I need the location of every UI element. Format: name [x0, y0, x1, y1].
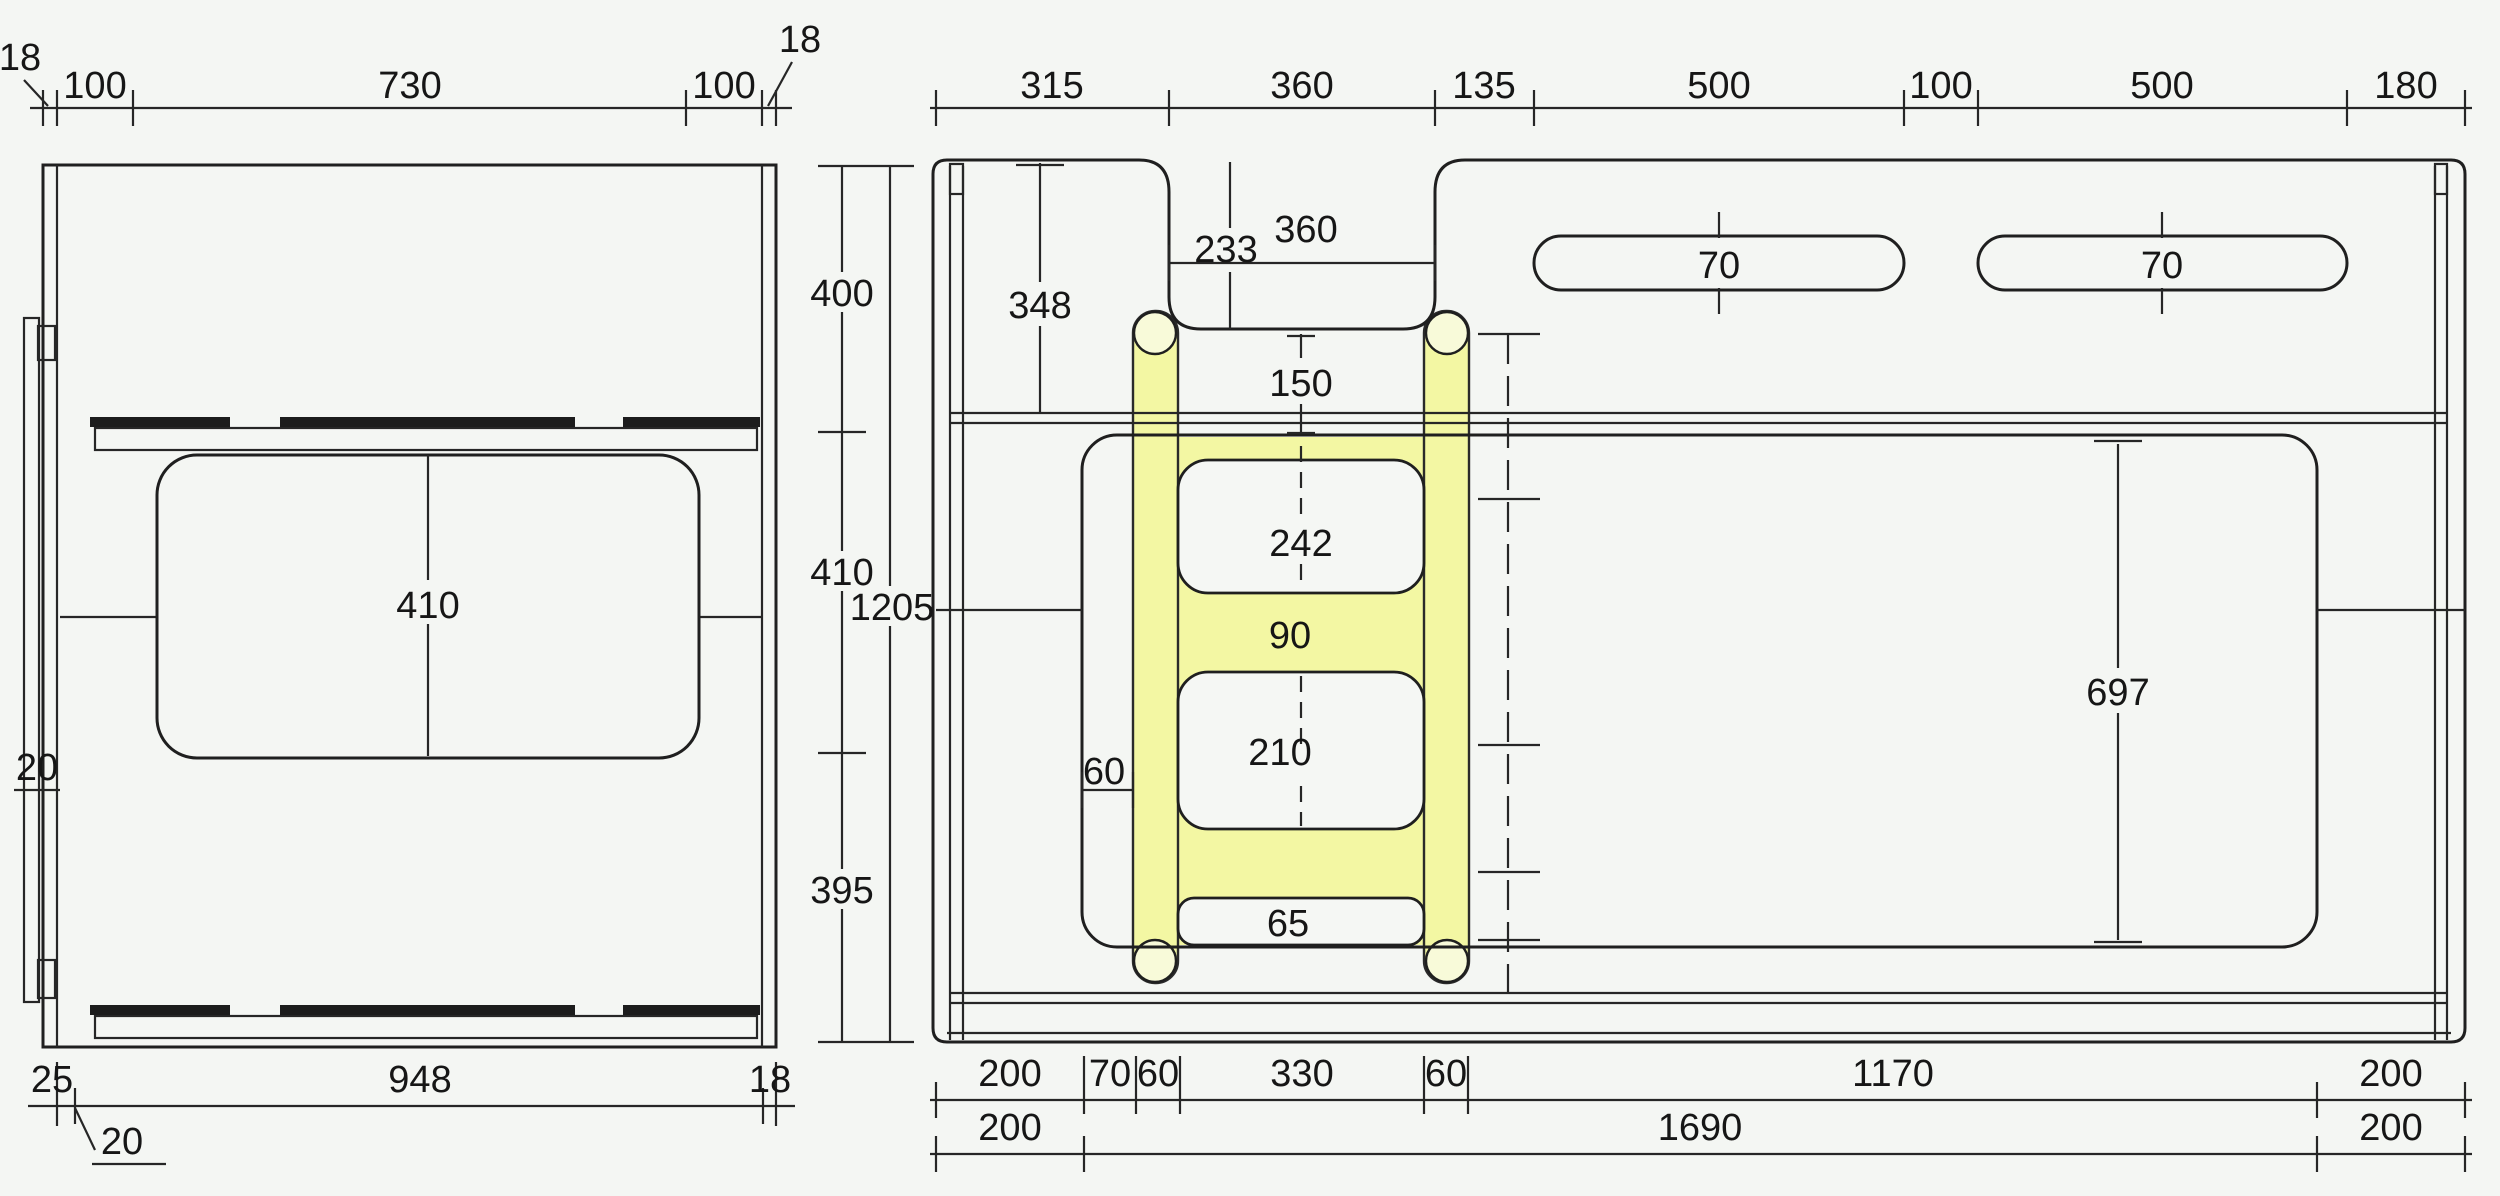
right-lower-rail — [950, 993, 2447, 1003]
dim-label-lv-100-left: 100 — [63, 65, 126, 107]
dim-label-rb1-330: 330 — [1270, 1053, 1333, 1095]
dim-label-rv-315: 315 — [1020, 65, 1083, 107]
dim-label-lv-100-right: 100 — [692, 65, 755, 107]
dim-label-lv-20-bottom: 20 — [101, 1121, 143, 1163]
dim-label-lv-948: 948 — [388, 1059, 451, 1101]
dashed-reference-line — [1478, 334, 1540, 992]
dim-label-rv-233: 233 — [1194, 229, 1257, 271]
dim-label-rb1-70: 70 — [1089, 1053, 1131, 1095]
dim-label-rv-360-notch: 360 — [1274, 209, 1337, 251]
dim-label-lv-20-mid: 20 — [16, 747, 58, 789]
dim-label-lv-730: 730 — [378, 65, 441, 107]
dim-label-rb1-200-r: 200 — [2359, 1053, 2422, 1095]
left-lower-rail — [90, 1005, 760, 1038]
dim-label-rb1-60-a: 60 — [1137, 1053, 1179, 1095]
dim-label-mid-400: 400 — [810, 273, 873, 315]
technical-drawing: 1810073010018410202594818204004101205395… — [0, 0, 2500, 1196]
dim-label-lv-18-right: 18 — [779, 19, 821, 61]
dim-label-rv-70-slot1: 70 — [1698, 245, 1740, 287]
left-outside-plank — [14, 318, 60, 1002]
drawing-canvas: 1810073010018410202594818204004101205395… — [0, 0, 2500, 1196]
dim-label-lv-410: 410 — [396, 585, 459, 627]
dim-label-rv-360-top: 360 — [1270, 65, 1333, 107]
dim-label-rv-135: 135 — [1452, 65, 1515, 107]
dim-label-rb2-200-l: 200 — [978, 1107, 1041, 1149]
dim-label-rv-210: 210 — [1248, 732, 1311, 774]
dim-label-rv-70-slot2: 70 — [2141, 245, 2183, 287]
dim-label-rv-65: 65 — [1267, 903, 1309, 945]
dim-label-lv-25: 25 — [31, 1059, 73, 1101]
dim-label-rv-180: 180 — [2374, 65, 2437, 107]
dim-label-rv-242: 242 — [1269, 523, 1332, 565]
dim-label-rb1-200-l: 200 — [978, 1053, 1041, 1095]
dim-label-rb2-1690: 1690 — [1658, 1107, 1743, 1149]
right-strip-cap-right — [2435, 164, 2447, 194]
dim-label-lv-18-bottom: 18 — [749, 1059, 791, 1101]
dim-label-mid-395: 395 — [810, 870, 873, 912]
dim-label-rv-100: 100 — [1909, 65, 1972, 107]
dim-label-rv-500-b: 500 — [2130, 65, 2193, 107]
hand-slot-center-ticks — [1719, 212, 2162, 314]
dim-label-lv-18-left: 18 — [0, 37, 41, 79]
dim-label-rv-60-stile: 60 — [1083, 751, 1125, 793]
dim-label-rb1-60-b: 60 — [1425, 1053, 1467, 1095]
dim-label-rb2-200-r: 200 — [2359, 1107, 2422, 1149]
right-strip-cap-left — [950, 164, 963, 194]
dim-label-rv-697: 697 — [2086, 672, 2149, 714]
dim-label-rv-348: 348 — [1008, 285, 1071, 327]
dim-label-rv-150: 150 — [1269, 363, 1332, 405]
dim-label-rv-500-a: 500 — [1687, 65, 1750, 107]
left-upper-rail — [90, 417, 760, 450]
dim-label-rv-90: 90 — [1269, 615, 1311, 657]
dim-label-mid-1205: 1205 — [850, 587, 935, 629]
dim-label-rb1-1170: 1170 — [1852, 1053, 1934, 1095]
